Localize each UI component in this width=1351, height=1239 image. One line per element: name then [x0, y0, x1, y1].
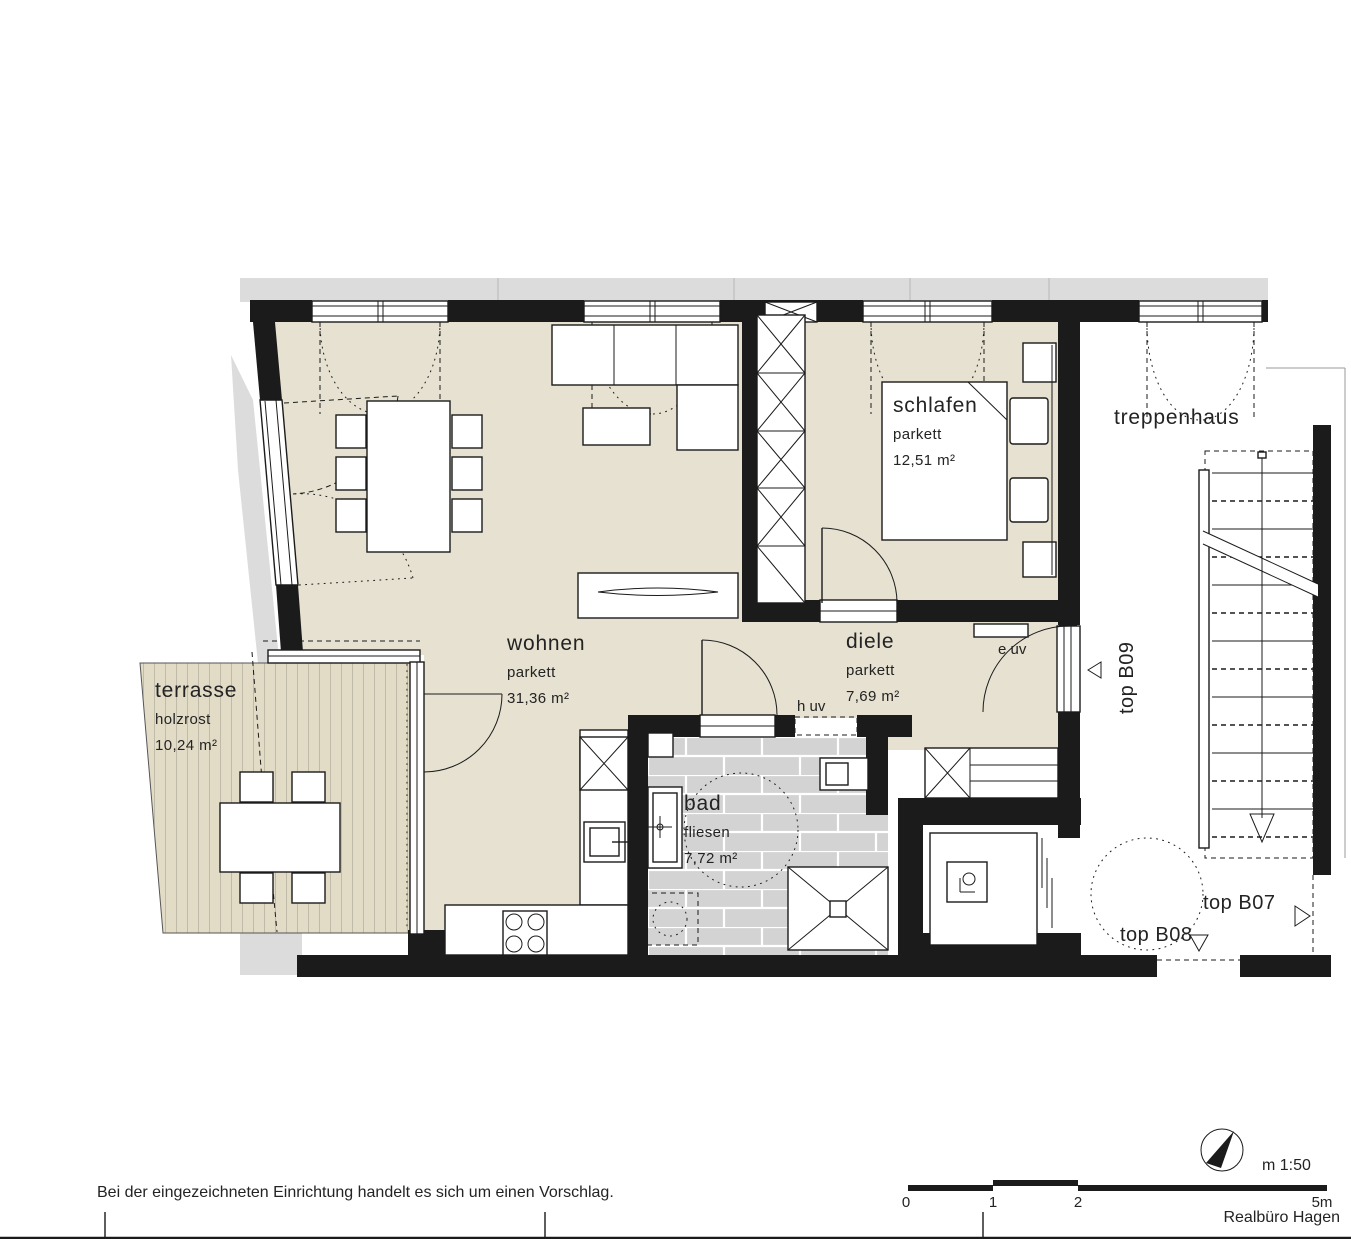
window-treppenhaus: [1139, 301, 1262, 420]
unit-label-b09: top B09: [1116, 642, 1138, 714]
sideboard-tv: [578, 573, 738, 618]
room-floor: parkett: [507, 664, 556, 681]
elevator-sliding-door: [1042, 838, 1052, 928]
scale-label: m 1:50: [1262, 1157, 1311, 1174]
cooktop: [503, 911, 547, 955]
shower: [788, 867, 888, 950]
schlafen-wardrobe: [757, 315, 805, 603]
h-uv-box: [795, 717, 857, 735]
credit: Realbüro Hagen: [1223, 1209, 1340, 1226]
room-floor: holzrost: [155, 711, 211, 728]
room-name: wohnen: [506, 632, 585, 655]
dining-set: [336, 401, 482, 552]
room-name: terrasse: [155, 679, 237, 702]
unit-label-b07: top B07: [1203, 892, 1275, 914]
room-name: bad: [684, 792, 721, 815]
floor-plan-sheet: top B09 top B07 top B08 wohnen parkett 3…: [0, 0, 1351, 1239]
north-arrow-icon: [1201, 1129, 1243, 1171]
toilet: [820, 758, 868, 790]
room-area: 12,51 m²: [893, 452, 955, 469]
elevator: [930, 833, 1052, 945]
unit-label-b08: top B08: [1120, 924, 1192, 946]
floor-plan-drawing: top B09 top B07 top B08 wohnen parkett 3…: [0, 0, 1351, 1239]
scale-bar: 0 1 2 5m: [902, 1180, 1333, 1211]
room-floor: fliesen: [684, 824, 730, 841]
scale-tick-1: 1: [989, 1194, 997, 1211]
sheet-footer: Bei der eingezeichneten Einrichtung hand…: [0, 1129, 1351, 1239]
room-area: 7,72 m²: [684, 850, 738, 867]
room-area: 10,24 m²: [155, 737, 217, 754]
coffee-table: [583, 408, 650, 445]
scale-tick-0: 0: [902, 1194, 910, 1211]
room-floor: parkett: [846, 662, 895, 679]
room-area: 31,36 m²: [507, 690, 569, 707]
stair-handrail: [1199, 470, 1209, 848]
room-name: diele: [846, 630, 894, 653]
triangle-right-icon: [1295, 906, 1310, 926]
diele-label: diele parkett 7,69 m²: [846, 630, 900, 705]
e-uv-label: e uv: [998, 641, 1027, 658]
stair-direction-arrow: [1250, 814, 1274, 842]
e-uv-box: [974, 624, 1028, 637]
room-area: 7,69 m²: [846, 688, 900, 705]
washbasin: [645, 787, 682, 868]
diele-cabinet: [925, 748, 1058, 798]
scale-tick-2: 2: [1074, 1194, 1082, 1211]
triangle-down-icon: [1190, 935, 1208, 951]
room-name: schlafen: [893, 394, 978, 417]
triangle-left-icon: [1088, 662, 1101, 678]
furniture-note: Bei der eingezeichneten Einrichtung hand…: [97, 1184, 614, 1201]
h-uv-label: h uv: [797, 698, 826, 715]
room-floor: parkett: [893, 426, 942, 443]
treppenhaus-label: treppenhaus: [1114, 406, 1240, 429]
